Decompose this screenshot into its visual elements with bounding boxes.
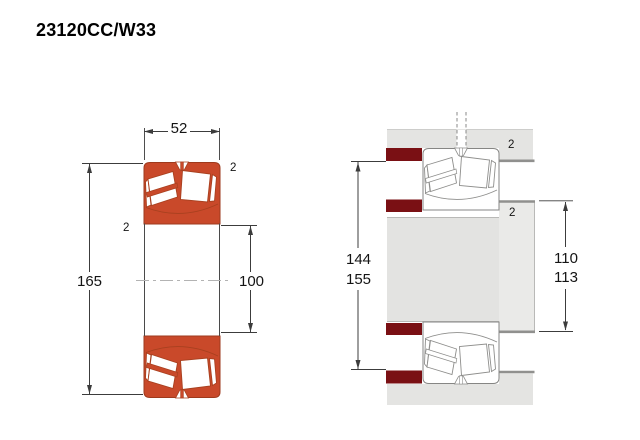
bore-diameter-label: 100: [239, 273, 264, 290]
od-corner-label: 2: [230, 162, 236, 174]
arrow-down-icon: [87, 385, 92, 394]
arrow-up-icon: [87, 164, 92, 173]
bore-diameter-dimension: 100: [221, 226, 264, 333]
mounted-arrangement-view: 144 155 110 113 2 2: [335, 100, 600, 420]
outside-diameter-dimension: 165: [77, 164, 143, 395]
arrow-right-icon: [211, 129, 220, 134]
arrow-down-icon: [563, 322, 568, 331]
housing-abutment-max-label: 155: [346, 271, 371, 288]
bearing-section-top: [423, 148, 499, 210]
locating-ring-shaft-top: [386, 200, 422, 213]
outside-diameter-label: 165: [77, 273, 102, 290]
housing-corner-label: 2: [508, 139, 514, 151]
bearing-section-top: [144, 162, 220, 224]
arrow-up-icon: [563, 202, 568, 211]
bearing-section-bottom: [423, 322, 499, 384]
bore-corner-label: 2: [123, 222, 129, 234]
width-dimension: 52: [144, 120, 220, 160]
shaft-abutment-max-label: 113: [554, 269, 578, 286]
arrow-down-icon: [356, 360, 361, 369]
shaft-abutment-dimension: 110 113: [539, 201, 578, 332]
bearing-section-bottom: [144, 336, 220, 398]
shaft-abutment-min-label: 110: [554, 250, 578, 267]
housing-abutment-dimension: 144 155: [346, 162, 386, 370]
locating-ring-shaft-bottom: [386, 323, 422, 335]
shaft: [387, 217, 499, 322]
arrow-up-icon: [356, 163, 361, 172]
arrow-left-icon: [144, 129, 153, 134]
bearing-designation-title: 23120CC/W33: [36, 20, 156, 41]
housing-abutment-min-label: 144: [346, 251, 371, 268]
bearing-cross-section-view: 52 165 100 2 2: [60, 100, 300, 420]
shaft-shoulder: [499, 201, 535, 333]
locating-ring-housing-bottom: [386, 371, 422, 384]
drawing-canvas: 23120CC/W33: [0, 0, 640, 440]
arrow-up-icon: [248, 226, 253, 235]
arrow-down-icon: [248, 323, 253, 332]
lubrication-hole: [457, 112, 467, 152]
width-dimension-label: 52: [171, 120, 188, 137]
locating-ring-housing-top: [386, 148, 422, 161]
shaft-corner-label: 2: [509, 207, 515, 219]
